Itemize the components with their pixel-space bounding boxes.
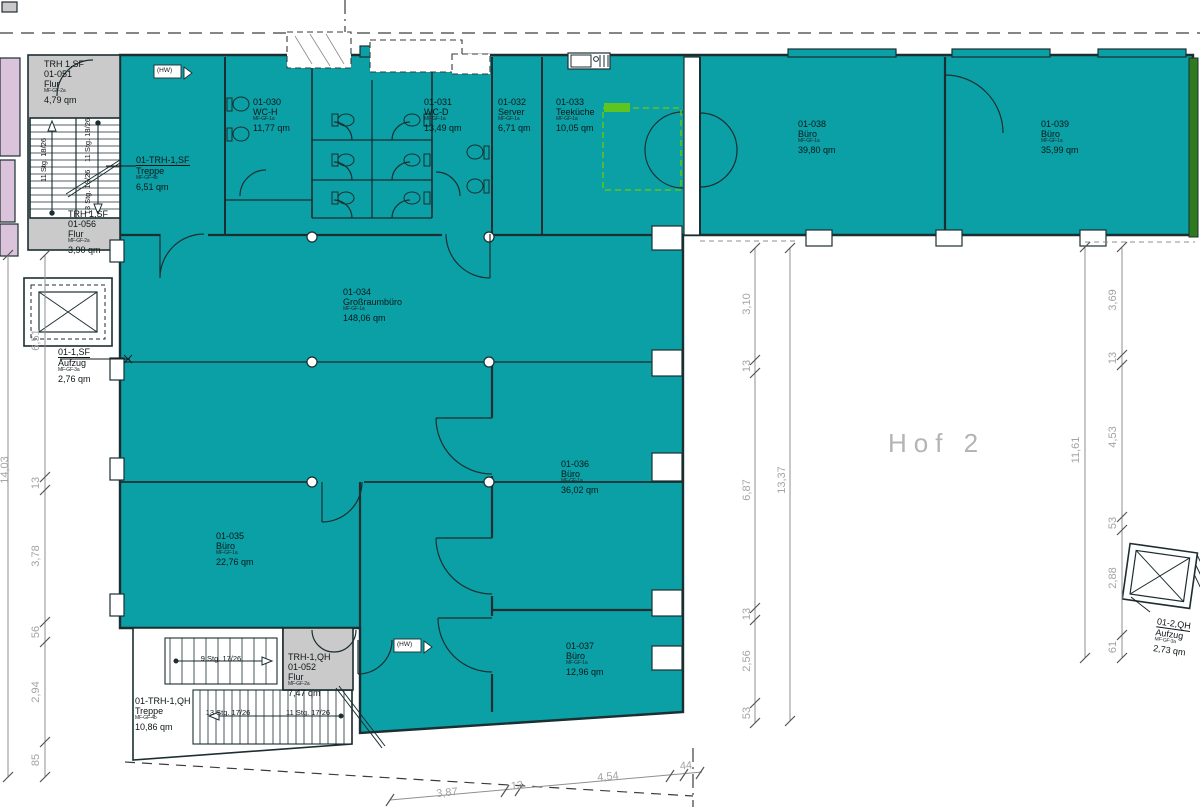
room-id: 01-051 — [44, 69, 84, 79]
room-id: 01-TRH-1,SF — [136, 155, 190, 166]
dimension-label: 4,53 — [1107, 426, 1119, 447]
room-id: 01-033 — [556, 97, 595, 107]
room-area: 11,77 qm — [253, 123, 290, 133]
dimension-label: 14,03 — [0, 456, 11, 484]
room-id: 01-035 — [216, 531, 254, 541]
room-label-01-036: 01-036 Büro MF-GF-1a 36,02 qm — [561, 459, 599, 495]
dimension-label: 13 — [741, 608, 753, 620]
room-label-01-034: 01-034 Großraumbüro MF-GF-1a 148,06 qm — [343, 287, 402, 323]
room-label-01-2qh-aufzug: 01-2,QH Aufzug MF-GF-3a 2,73 qm — [1153, 616, 1192, 657]
kitchen-sink-icon — [568, 53, 610, 69]
room-area: 22,76 qm — [216, 557, 254, 567]
dimension-label: 11,61 — [1070, 437, 1082, 464]
room-id: 01-032 — [498, 97, 531, 107]
dimension-label: 13,37 — [776, 466, 788, 494]
room-area: 12,96 qm — [566, 667, 604, 677]
stair-label-sf-right-upper: 11 Stg. 18/26 — [83, 118, 93, 162]
dimension-label: 13 — [741, 360, 753, 372]
room-area: 3,90 qm — [68, 245, 108, 255]
floorplan-page: TRH 1,SF 01-051 Flur MF-GF-2a 4,79 qm 01… — [0, 0, 1200, 807]
room-id: 01-1,SF — [58, 347, 90, 358]
balcony-outlines — [287, 32, 490, 74]
room-id: 01-030 — [253, 97, 290, 107]
dimension-label: 44 — [679, 759, 692, 772]
room-area: 35,99 qm — [1041, 145, 1079, 155]
neighbor-building — [0, 2, 20, 256]
room-area: 13,49 qm — [424, 123, 462, 133]
room-area: 7,47 qm — [288, 688, 331, 698]
room-label-01-trh-1sf: 01-TRH-1,SF Treppe MF-GF-4b 6,51 qm — [136, 155, 190, 192]
hw-marker: (HW) — [397, 639, 412, 651]
room-label-01-052: TRH-1,QH 01-052 Flur MF-GF-2a 7,47 qm — [288, 652, 331, 698]
dimension-label: 4,54 — [597, 770, 619, 784]
room-label-01-1sf-aufzug: 01-1,SF Aufzug MF-GF-3a 2,76 qm — [58, 347, 91, 384]
dimension-label: 2,56 — [741, 650, 753, 671]
dimension-label: 53 — [741, 707, 753, 719]
room-area: 10,86 qm — [135, 722, 191, 732]
room-label-01-035: 01-035 Büro MF-GF-1a 22,76 qm — [216, 531, 254, 567]
dimension-label: 85 — [30, 754, 42, 766]
room-id: 01-TRH-1,QH — [135, 696, 191, 706]
dimension-label: 56 — [30, 626, 42, 638]
room-id: 01-036 — [561, 459, 599, 469]
stair-label-qh-lower: 11 Stg. 17/26 — [286, 708, 330, 718]
room-area: 10,05 qm — [556, 123, 595, 133]
dimension-label: 3,87 — [436, 786, 458, 800]
dimension-label: 61 — [1107, 641, 1119, 653]
room-id: 01-031 — [424, 97, 462, 107]
courtyard-label: Hof 2 — [888, 428, 985, 459]
edge-green-strip — [1189, 58, 1198, 237]
room-label-01-037: 01-037 Büro MF-GF-1a 12,96 qm — [566, 641, 604, 677]
room-building: TRH 1,SF — [44, 59, 84, 69]
floorplan-drawing — [0, 0, 1200, 807]
dimension-label: 13 — [510, 779, 523, 792]
room-label-01-030: 01-030 WC-H MF-GF-1a 11,77 qm — [253, 97, 290, 133]
stair-label-qh-mid: 13 Stg. 17/26 — [206, 708, 251, 718]
dimension-label: 3,10 — [741, 293, 753, 314]
stair-label-sf-left: 11 Stg. 18/26 — [39, 138, 49, 182]
room-area: 4,79 qm — [44, 95, 84, 105]
room-id: 01-052 — [288, 662, 331, 672]
stair-label-qh-upper: 9 Stg. 17/26 — [201, 654, 241, 664]
room-id: 01-037 — [566, 641, 604, 651]
room-id: 01-038 — [798, 119, 836, 129]
room-label-01-039: 01-039 Büro MF-GF-1a 35,99 qm — [1041, 119, 1079, 155]
dimension-label: 53 — [1107, 517, 1119, 529]
room-area: 36,02 qm — [561, 485, 599, 495]
room-id: 01-056 — [68, 219, 108, 229]
dimension-label: 2,94 — [30, 681, 42, 702]
room-area: 2,76 qm — [58, 374, 91, 384]
room-area: 39,80 qm — [798, 145, 836, 155]
room-area: 6,71 qm — [498, 123, 531, 133]
dimension-label: 6,51 — [30, 329, 42, 350]
room-area: 148,06 qm — [343, 313, 402, 323]
room-label-01-trh-1qh: 01-TRH-1,QH Treppe MF-GF-4b 10,86 qm — [135, 696, 191, 732]
room-building: TRH-1,QH — [288, 652, 331, 662]
room-label-01-051: TRH 1,SF 01-051 Flur MF-GF-2a 4,79 qm — [44, 59, 84, 105]
dimension-label: 3,78 — [30, 545, 42, 566]
dimension-label: 13 — [30, 477, 42, 489]
room-id: 01-039 — [1041, 119, 1079, 129]
room-label-01-032: 01-032 Server MF-GF-1a 6,71 qm — [498, 97, 531, 133]
dimension-label: 3,69 — [1107, 289, 1119, 310]
dimension-label: 6,87 — [741, 479, 753, 500]
room-label-01-038: 01-038 Büro MF-GF-1a 39,80 qm — [798, 119, 836, 155]
dimension-label: 13 — [1107, 352, 1119, 364]
stair-label-sf-right-lower: 13 Stg. 18/26 — [83, 170, 93, 215]
room-label-01-031: 01-031 WC-D MF-GF-1a 13,49 qm — [424, 97, 462, 133]
dimension-label: 2,88 — [1107, 567, 1119, 588]
room-label-01-056: TRH 1,SF 01-056 Flur MF-GF-2a 3,90 qm — [68, 209, 108, 255]
room-label-01-033: 01-033 Teeküche MF-GF-1a 10,05 qm — [556, 97, 595, 133]
room-id: 01-034 — [343, 287, 402, 297]
room-area: 6,51 qm — [136, 182, 190, 192]
hw-marker: (HW) — [157, 65, 172, 77]
